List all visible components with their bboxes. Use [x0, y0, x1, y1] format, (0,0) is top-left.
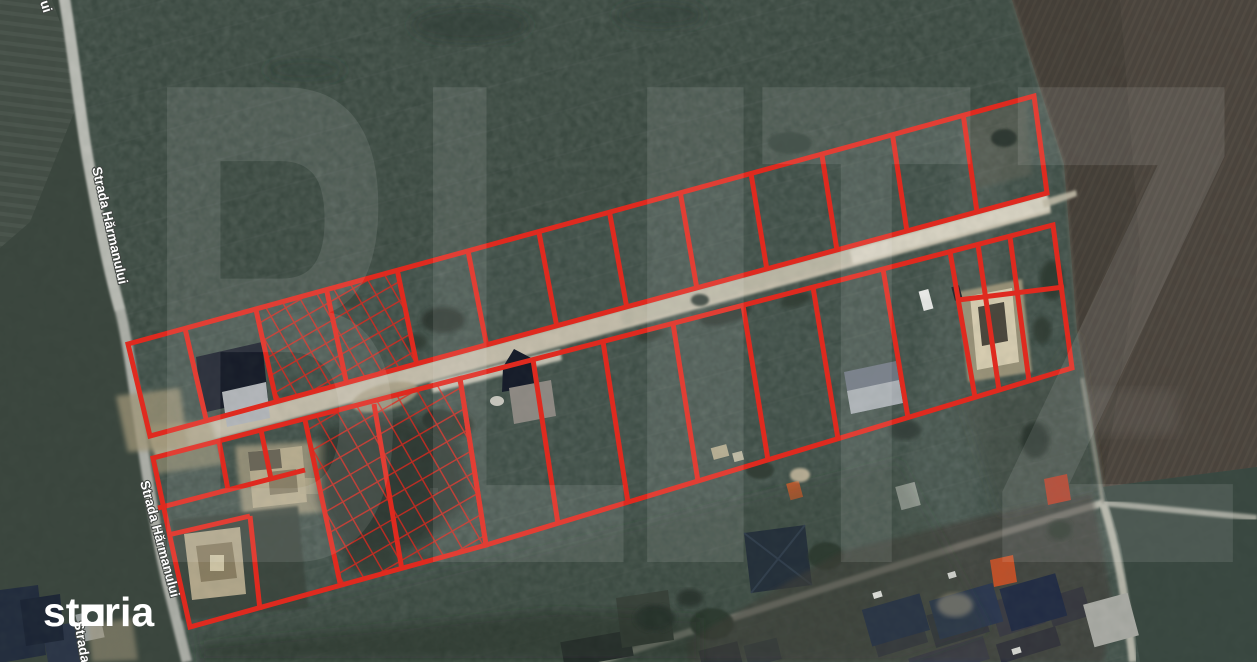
svg-text:L: L	[408, 0, 635, 662]
svg-text:T: T	[758, 0, 974, 662]
svg-text:st: st	[43, 589, 80, 635]
svg-text:Z: Z	[990, 0, 1245, 662]
svg-text:ria: ria	[104, 589, 155, 635]
svg-text:B: B	[142, 0, 409, 662]
